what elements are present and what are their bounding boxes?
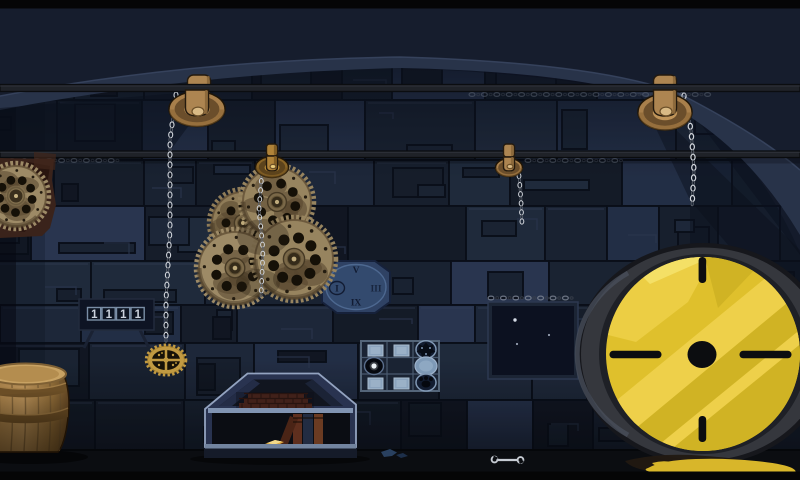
svg-text:IX: IX bbox=[351, 299, 362, 309]
svg-text:1: 1 bbox=[106, 309, 113, 321]
svg-text:III: III bbox=[370, 285, 381, 295]
svg-text:1: 1 bbox=[135, 309, 142, 321]
svg-text:1: 1 bbox=[120, 309, 127, 321]
svg-text:V: V bbox=[353, 266, 360, 276]
svg-text:1: 1 bbox=[91, 309, 98, 321]
svg-text:I: I bbox=[335, 285, 339, 295]
